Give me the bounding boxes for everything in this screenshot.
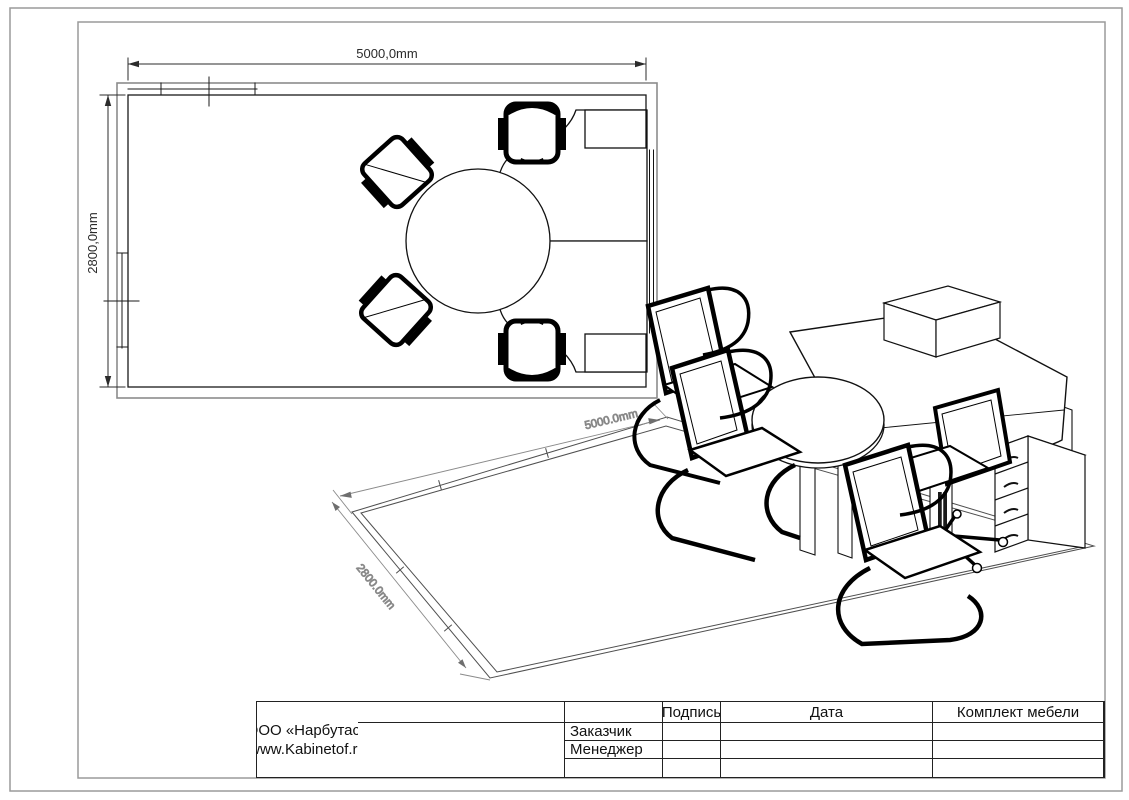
company-name: ООО «Нарбутас»	[257, 721, 358, 740]
tb-manager-date	[933, 741, 1104, 759]
tb-customer-label: Заказчик	[565, 723, 663, 741]
title-block: Подпись Дата Комплект мебели ООО «Нарбут…	[256, 701, 1105, 778]
cad-drawing: 5000,0mm 2800,0mm	[0, 0, 1129, 800]
plan-executive-chair-top	[498, 104, 566, 162]
plan-round-table	[406, 169, 550, 313]
plan-pedestal-top	[585, 110, 646, 148]
tb-project-title: Комплект мебели	[933, 702, 1104, 723]
plan-width-dim-label: 5000,0mm	[356, 46, 417, 61]
tb-signature-header: Подпись	[663, 702, 721, 723]
tb-empty	[565, 702, 663, 723]
tb-empty	[565, 759, 663, 777]
tb-empty	[663, 759, 721, 777]
floor-plan-view: 5000,0mm 2800,0mm	[85, 46, 657, 398]
tb-company-block: ООО «Нарбутас» www.Kabinetof.ru	[257, 702, 358, 777]
tb-manager-value	[663, 741, 721, 759]
tb-project-body	[358, 723, 565, 777]
drawing-sheet: 5000,0mm 2800,0mm	[0, 0, 1129, 800]
company-website: www.Kabinetof.ru	[257, 740, 358, 759]
plan-executive-chair-bottom	[498, 321, 566, 379]
plan-height-dim-label: 2800,0mm	[85, 212, 100, 273]
plan-pedestal-bottom	[585, 334, 646, 372]
tb-manager-signature	[721, 741, 933, 759]
tb-date-header: Дата	[721, 702, 933, 723]
tb-manager-label: Менеджер	[565, 741, 663, 759]
tb-customer-signature	[721, 723, 933, 741]
tb-customer-value	[663, 723, 721, 741]
tb-empty	[721, 759, 933, 777]
tb-empty	[933, 759, 1104, 777]
tb-empty	[358, 702, 565, 723]
tb-customer-date	[933, 723, 1104, 741]
